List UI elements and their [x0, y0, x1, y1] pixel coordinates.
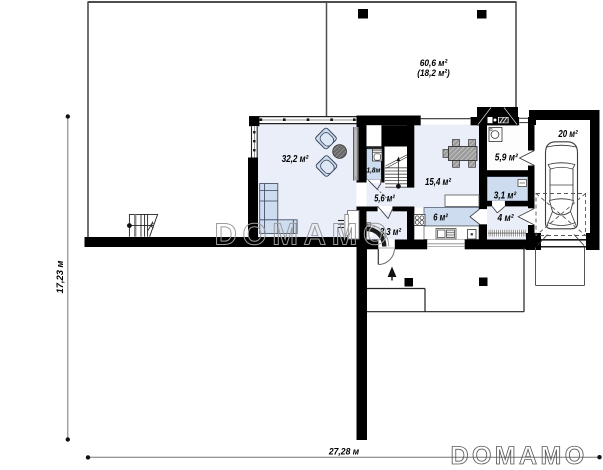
svg-text:3,1 м²: 3,1 м²: [494, 190, 517, 201]
svg-text:5,9 м²: 5,9 м²: [495, 152, 519, 163]
svg-text:6 м²: 6 м²: [433, 213, 448, 224]
svg-text:17,23 м: 17,23 м: [55, 260, 65, 293]
svg-text:27,28 м: 27,28 м: [328, 446, 359, 456]
svg-text:DOMAMO: DOMAMO: [451, 442, 588, 470]
svg-text:20 м²: 20 м²: [558, 129, 579, 140]
svg-text:4 м²: 4 м²: [497, 213, 514, 224]
svg-text:60,6 м²: 60,6 м²: [420, 58, 448, 68]
svg-text:DOMAMO: DOMAMO: [215, 217, 393, 252]
svg-text:15,4 м²: 15,4 м²: [425, 177, 451, 188]
svg-text:1,8м²: 1,8м²: [367, 165, 384, 174]
svg-text:(18,2 м²): (18,2 м²): [417, 68, 450, 78]
svg-text:32,2 м²: 32,2 м²: [282, 154, 309, 165]
svg-text:5,6 м²: 5,6 м²: [374, 194, 395, 205]
